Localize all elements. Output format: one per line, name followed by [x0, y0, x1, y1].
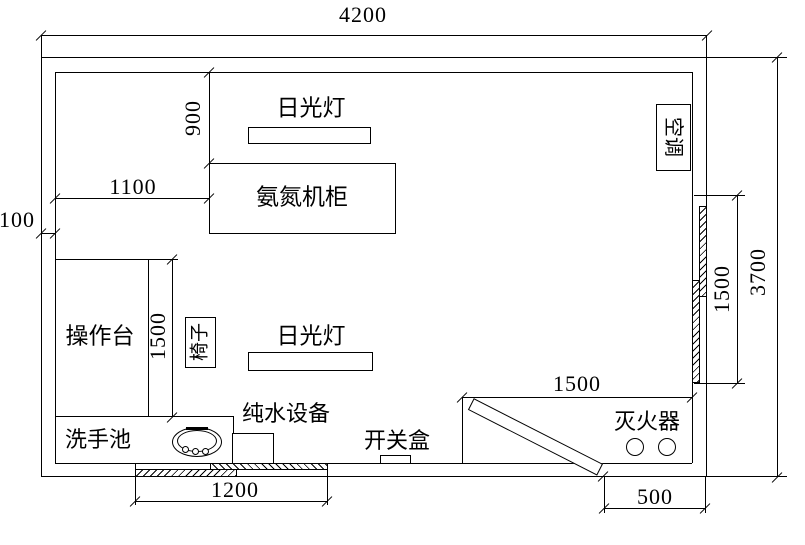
dim-line-900 — [209, 72, 210, 163]
fire-extinguisher-circle — [658, 438, 676, 456]
pure-water-box — [232, 433, 274, 464]
sink-drain-dot — [192, 448, 199, 455]
label-lamp-top: 日光灯 — [277, 97, 346, 120]
inner-wall-top — [55, 72, 692, 73]
dim-text-500: 500 — [637, 486, 673, 508]
lamp-top-box — [248, 127, 371, 144]
dim-text-1500-bottom: 1500 — [553, 373, 601, 395]
label-cabinet: 氨氮机柜 — [256, 186, 348, 209]
dim-text-1500-left: 1500 — [147, 312, 169, 360]
label-pure-water: 纯水设备 — [242, 403, 330, 425]
dim-text-100: 100 — [0, 209, 35, 231]
dim-text-1100: 1100 — [109, 176, 156, 198]
dim-line-1500-right — [737, 195, 738, 383]
label-sink: 洗手池 — [65, 429, 131, 451]
inner-wall-right — [692, 72, 693, 463]
right-window-panel-outer — [699, 206, 707, 297]
label-fire-extinguisher: 灭火器 — [614, 411, 680, 433]
label-switch-box: 开关盒 — [364, 430, 430, 452]
sink-drain-dot — [182, 446, 189, 453]
outer-wall-top — [41, 57, 787, 58]
right-window-panel-inner — [692, 280, 700, 383]
dim-text-3700: 3700 — [747, 248, 769, 296]
label-workbench: 操作台 — [66, 325, 135, 348]
dim-text-1500-right: 1500 — [711, 265, 733, 313]
outer-wall-left — [41, 35, 42, 476]
lamp-bottom-box — [248, 352, 373, 371]
sink-faucet-mark — [186, 427, 208, 430]
dim-text-1200: 1200 — [211, 479, 259, 501]
dim-text-900: 900 — [182, 100, 204, 136]
ext-line-1500-bottom — [462, 397, 463, 463]
bottom-sliding-panel-left — [135, 469, 237, 477]
floor-plan: 4200 1100 100 900 1500 1500 3700 1500 12… — [0, 0, 805, 545]
ext-line-workbench-top — [148, 259, 178, 260]
label-air-conditioner: 空调 — [663, 117, 683, 157]
fire-extinguisher-circle — [626, 438, 644, 456]
label-chair: 椅子 — [191, 323, 210, 361]
label-lamp-bottom: 日光灯 — [277, 325, 346, 348]
dim-line-4200 — [41, 35, 707, 36]
dim-text-4200: 4200 — [339, 4, 387, 26]
dim-line-3700 — [777, 57, 778, 477]
switch-box-box — [380, 455, 411, 464]
sink-drain-dot — [202, 448, 209, 455]
dim-line-1500-left — [172, 259, 173, 417]
dim-line-1500-bottom — [462, 397, 692, 398]
